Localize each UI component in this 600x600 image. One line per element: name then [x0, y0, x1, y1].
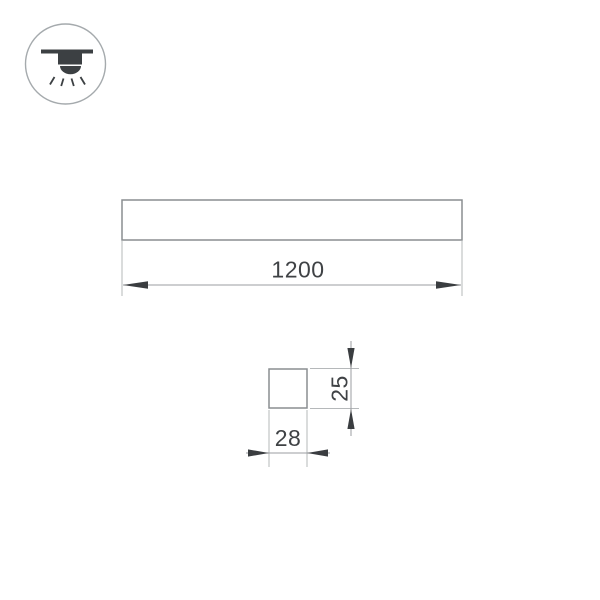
- arrow-up-icon: [347, 409, 354, 429]
- dim-length-value: 1200: [271, 257, 324, 283]
- recessed-light-icon: [26, 24, 106, 104]
- arrow-left-icon: [123, 281, 148, 289]
- dim-height-value: 25: [327, 375, 353, 402]
- arrow-right-icon: [248, 449, 269, 456]
- fixture-section-outline: [269, 369, 307, 408]
- arrow-left-icon: [307, 449, 328, 456]
- dim-width: 28: [246, 410, 330, 467]
- dim-height: 25: [310, 341, 359, 436]
- drawing-page: 1200 25: [0, 0, 600, 600]
- fixture-front-view: [122, 200, 462, 240]
- arrow-right-icon: [436, 281, 461, 289]
- fixture-section-view: [269, 369, 307, 408]
- arrow-down-icon: [347, 348, 354, 368]
- icon-ceiling-bar: [41, 50, 93, 54]
- technical-drawing: 1200 25: [0, 0, 600, 600]
- icon-fixture-body: [58, 54, 82, 65]
- dim-length: 1200: [122, 241, 462, 296]
- fixture-front-outline: [122, 200, 462, 240]
- dim-width-value: 28: [275, 425, 302, 451]
